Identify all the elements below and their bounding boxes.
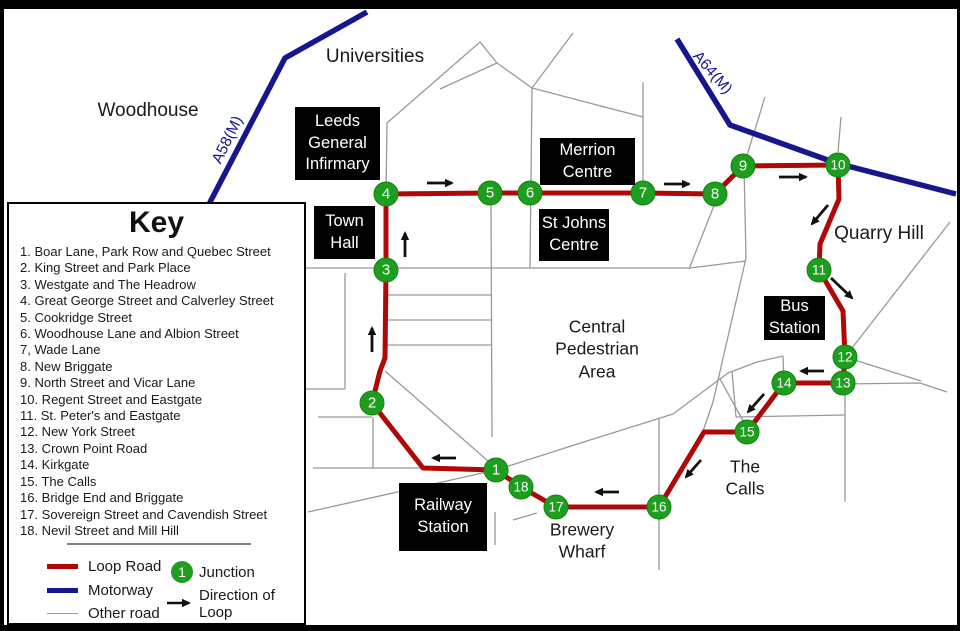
junction-number: 6 (526, 185, 534, 202)
junction-number: 16 (651, 500, 666, 515)
junction-16: 16 (647, 495, 671, 519)
junction-18: 18 (509, 475, 533, 499)
quarry-hill-label: Quarry Hill (834, 222, 924, 246)
other-road (701, 166, 746, 437)
junction-number: 18 (513, 480, 528, 495)
key-item: 8. New Briggate (20, 359, 298, 375)
junction-2: 2 (360, 391, 384, 415)
merrion-centre-box: MerrionCentre (540, 138, 635, 185)
junction-number: 14 (776, 376, 792, 391)
junction-number: 4 (382, 186, 390, 203)
town-hall-box: TownHall (314, 206, 375, 259)
motorway-road (677, 39, 956, 194)
junction-number: 3 (382, 262, 390, 279)
key-panel: Key 1. Boar Lane, Park Row and Quebec St… (7, 202, 306, 625)
central-pedestrian-area-label: CentralPedestrianArea (555, 315, 639, 382)
legend-direction-arrow (165, 596, 199, 610)
merrion-centre-box-label: MerrionCentre (560, 140, 616, 184)
junction-number: 15 (739, 425, 754, 440)
legend-row-loop-road: Loop Road (47, 558, 161, 575)
key-separator (67, 543, 251, 545)
loop-road-map: 123456789101112131415161718 WoodhouseUni… (0, 0, 960, 631)
legend-loop-road-label: Loop Road (88, 558, 161, 575)
st-johns-centre-box: St JohnsCentre (539, 209, 609, 261)
other-road (532, 88, 643, 117)
junction-number: 11 (812, 263, 826, 278)
junction-number: 1 (492, 462, 500, 479)
other-road (303, 261, 746, 268)
junction-13: 13 (831, 371, 855, 395)
other-road (532, 33, 573, 88)
junction-11: 11 (807, 258, 831, 282)
universities-label: Universities (326, 45, 424, 69)
key-title: Key (9, 206, 304, 240)
junction-number: 5 (486, 185, 494, 202)
junction-3: 3 (374, 258, 398, 282)
other-road (530, 88, 532, 268)
key-item: 18. Nevil Street and Mill Hill (20, 523, 298, 539)
junction-number: 7 (639, 185, 647, 202)
legend-direction-label: Direction ofLoop (199, 587, 275, 622)
key-item: 9. North Street and Vicar Lane (20, 375, 298, 391)
junction-15: 15 (735, 420, 759, 444)
junction-9: 9 (731, 154, 755, 178)
junction-14: 14 (772, 371, 796, 395)
key-item: 16. Bridge End and Briggate (20, 490, 298, 506)
key-list: 1. Boar Lane, Park Row and Quebec Street… (9, 244, 304, 539)
key-item: 2. King Street and Park Place (20, 260, 298, 276)
brewery-wharf-label: BreweryWharf (550, 519, 614, 564)
junction-8: 8 (703, 182, 727, 206)
legend-row-other-road: Other road (47, 605, 160, 622)
other-road (736, 415, 845, 417)
other-road (497, 63, 532, 88)
key-item: 3. Westgate and The Headrow (20, 277, 298, 293)
key-item: 5. Cookridge Street (20, 310, 298, 326)
key-item: 13. Crown Point Road (20, 441, 298, 457)
woodhouse-label: Woodhouse (97, 99, 198, 123)
other-road (843, 383, 947, 392)
junction-4: 4 (374, 182, 398, 206)
junction-number: 12 (837, 350, 852, 365)
junction-6: 6 (518, 181, 542, 205)
key-item: 1. Boar Lane, Park Row and Quebec Street (20, 244, 298, 260)
legend-row-direction: Direction ofLoop (199, 587, 275, 622)
bus-station-box-label: BusStation (769, 296, 820, 340)
key-item: 4. Great George Street and Calverley Str… (20, 293, 298, 309)
junction-1: 1 (484, 458, 508, 482)
junction-number: 13 (835, 376, 850, 391)
key-item: 17. Sovereign Street and Cavendish Stree… (20, 507, 298, 523)
key-item: 15. The Calls (20, 474, 298, 490)
leeds-general-infirmary-box-label: LeedsGeneralInfirmary (305, 111, 369, 176)
key-item: 11. St. Peter's and Eastgate (20, 408, 298, 424)
junction-number: 2 (368, 395, 376, 412)
legend-other-road-label: Other road (88, 605, 160, 622)
junction-12: 12 (833, 345, 857, 369)
legend-row-motorway: Motorway (47, 582, 153, 599)
motorway-swatch (47, 588, 78, 593)
bus-station-box: BusStation (764, 296, 825, 340)
junction-17: 17 (544, 495, 568, 519)
other-road (385, 371, 496, 468)
other-road-swatch (47, 613, 78, 615)
junction-number: 9 (739, 158, 747, 175)
key-item: 7, Wade Lane (20, 342, 298, 358)
other-road (732, 371, 736, 417)
the-calls-label: TheCalls (726, 456, 765, 501)
junction-5: 5 (478, 181, 502, 205)
key-item: 6. Woodhouse Lane and Albion Street (20, 326, 298, 342)
loop-road-swatch (47, 564, 78, 569)
junction-number: 8 (711, 186, 719, 203)
legend-junction-label: Junction (199, 564, 255, 581)
other-road (440, 63, 497, 89)
other-road (491, 203, 492, 437)
junction-number: 10 (830, 158, 845, 173)
key-item: 10. Regent Street and Eastgate (20, 392, 298, 408)
other-road (496, 356, 783, 470)
other-road (838, 117, 841, 152)
leeds-general-infirmary-box: LeedsGeneralInfirmary (295, 107, 380, 180)
junction-number: 17 (548, 500, 563, 515)
other-road (689, 203, 715, 269)
legend-junction-number: 1 (178, 564, 186, 580)
legend-junction-circle: 1 (171, 561, 193, 583)
town-hall-box-label: TownHall (325, 211, 364, 255)
junction-10: 10 (826, 153, 850, 177)
key-item: 12. New York Street (20, 424, 298, 440)
other-road (513, 513, 537, 520)
legend-row-junction: Junction (199, 564, 255, 581)
railway-station-box-label: RailwayStation (414, 495, 472, 539)
st-johns-centre-box-label: St JohnsCentre (542, 213, 606, 257)
legend-motorway-label: Motorway (88, 582, 153, 599)
direction-arrow (812, 205, 828, 224)
railway-station-box: RailwayStation (399, 483, 487, 551)
key-item: 14. Kirkgate (20, 457, 298, 473)
